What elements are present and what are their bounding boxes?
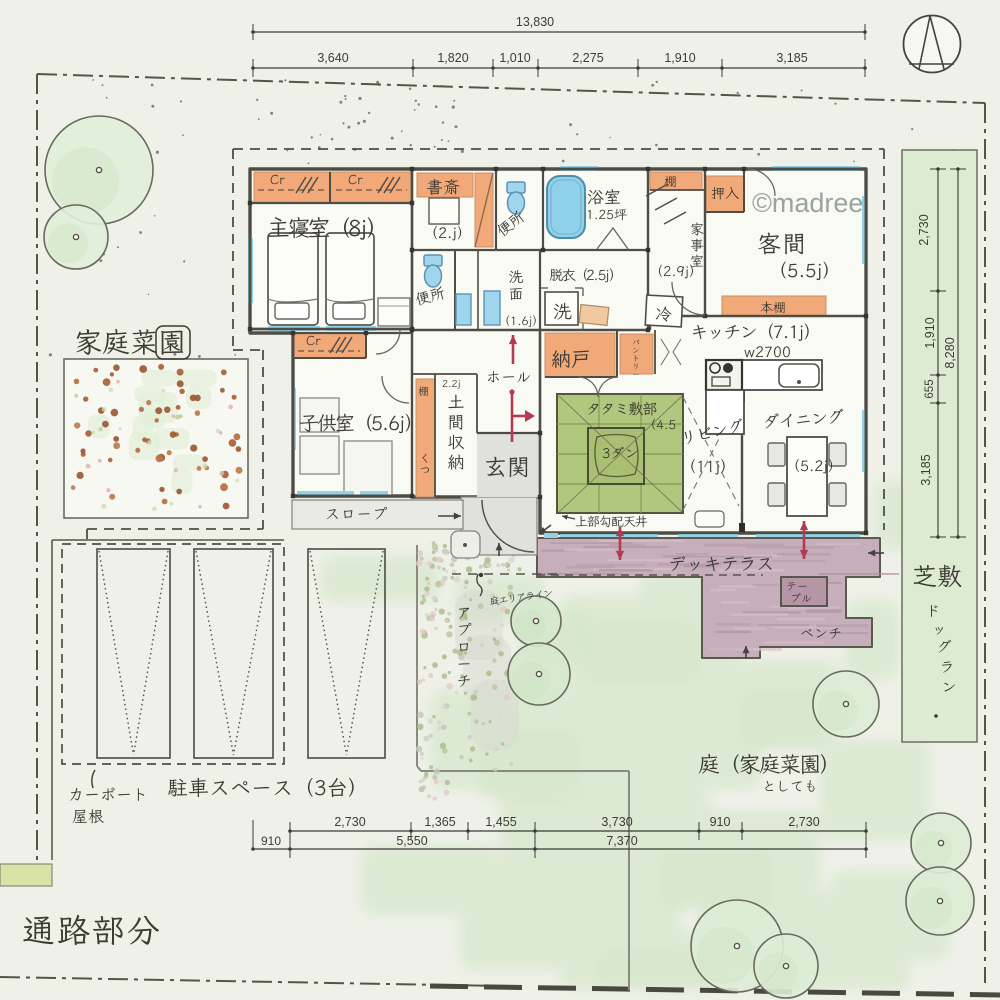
svg-text:1,010: 1,010 bbox=[499, 51, 530, 65]
svg-text:910: 910 bbox=[710, 815, 731, 829]
svg-text:1,820: 1,820 bbox=[437, 51, 468, 65]
svg-text:3,640: 3,640 bbox=[317, 51, 348, 65]
svg-text:3,185: 3,185 bbox=[919, 454, 933, 485]
svg-text:©madree: ©madree bbox=[752, 188, 863, 218]
svg-text:8,280: 8,280 bbox=[943, 337, 957, 368]
svg-text:5,550: 5,550 bbox=[396, 834, 427, 848]
svg-text:2,275: 2,275 bbox=[572, 51, 603, 65]
svg-text:1,910: 1,910 bbox=[664, 51, 695, 65]
svg-text:3,185: 3,185 bbox=[776, 51, 807, 65]
svg-text:2,730: 2,730 bbox=[917, 214, 931, 245]
svg-text:7,370: 7,370 bbox=[606, 834, 637, 848]
svg-text:1,455: 1,455 bbox=[485, 815, 516, 829]
svg-text:3,730: 3,730 bbox=[601, 815, 632, 829]
svg-text:1,910: 1,910 bbox=[923, 317, 937, 348]
svg-text:2,730: 2,730 bbox=[334, 815, 365, 829]
svg-text:655: 655 bbox=[924, 379, 936, 398]
svg-text:2,730: 2,730 bbox=[788, 815, 819, 829]
svg-text:910: 910 bbox=[261, 834, 281, 848]
svg-text:1,365: 1,365 bbox=[424, 815, 455, 829]
svg-text:13,830: 13,830 bbox=[516, 15, 554, 29]
